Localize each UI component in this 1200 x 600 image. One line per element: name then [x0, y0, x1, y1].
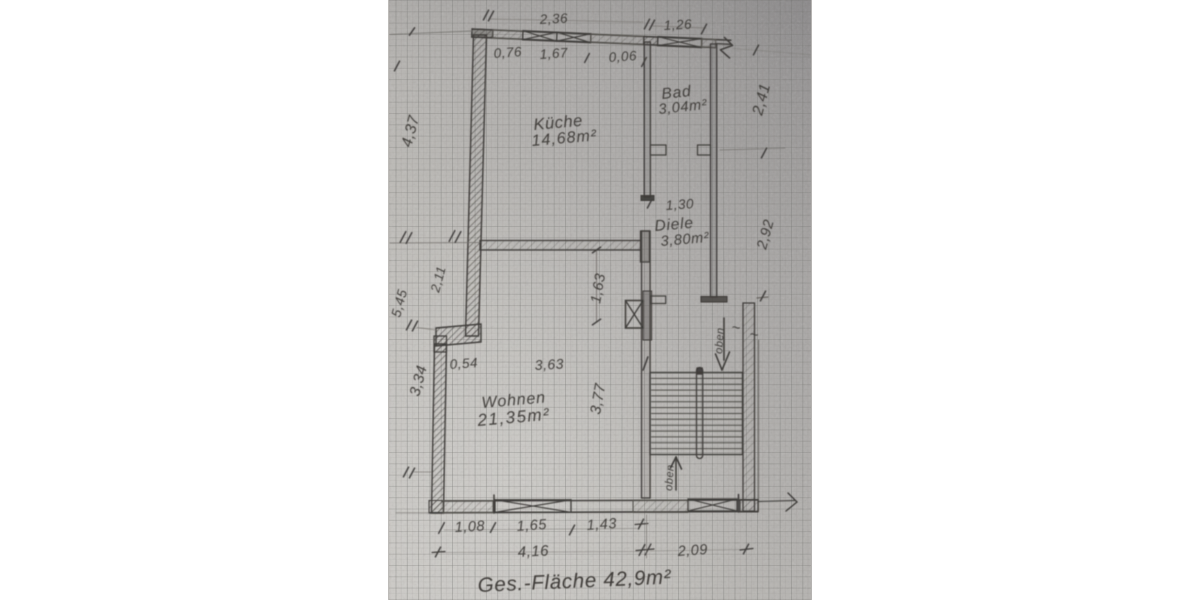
svg-text:1,08: 1,08: [454, 518, 485, 536]
svg-text:1,65: 1,65: [516, 517, 548, 535]
svg-text:1,43: 1,43: [586, 516, 617, 534]
svg-text:oben: oben: [713, 327, 727, 354]
svg-text:oben: oben: [663, 464, 677, 491]
svg-text:4,16: 4,16: [517, 542, 549, 561]
svg-text:2,36: 2,36: [538, 11, 568, 28]
svg-text:2,09: 2,09: [676, 542, 708, 560]
svg-text:1,26: 1,26: [663, 17, 692, 33]
svg-text:1,67: 1,67: [539, 45, 568, 62]
svg-text:0,54: 0,54: [449, 355, 478, 372]
svg-text:1,30: 1,30: [665, 196, 694, 213]
svg-text:0,76: 0,76: [493, 44, 522, 61]
svg-text:3,63: 3,63: [534, 355, 564, 373]
svg-text:0,06: 0,06: [608, 48, 637, 65]
